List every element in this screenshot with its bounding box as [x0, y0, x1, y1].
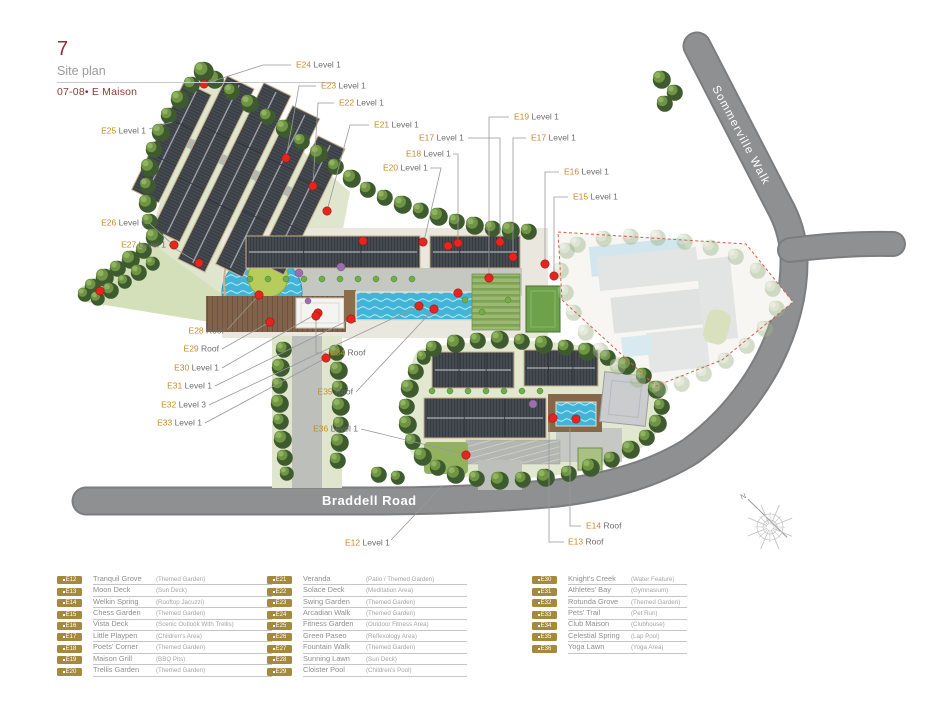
legend-row: E26Green Paseo(Reflexology Area) — [267, 631, 467, 642]
legend-facility-desc: (Water Feature) — [631, 576, 674, 583]
legend-facility-name: Pets' Trail — [568, 608, 631, 617]
tree-icon — [582, 459, 600, 477]
legend-row: E13Moon Deck(Sun Deck) — [57, 585, 272, 596]
badge-dot-icon — [538, 614, 540, 616]
legend-row: E24Arcadian Walk(Themed Garden) — [267, 608, 467, 619]
tree-icon — [559, 243, 575, 259]
tree-icon — [622, 441, 640, 459]
legend-badge-id: E33 — [541, 611, 552, 619]
tree-icon — [639, 430, 655, 446]
bush-icon — [447, 388, 453, 394]
tree-icon — [535, 336, 553, 354]
legend-badge-id: E14 — [66, 599, 77, 607]
legend-facility-name: Yoga Lawn — [568, 642, 631, 651]
facility-marker — [509, 253, 517, 261]
legend-row: E35Celestial Spring(Lap Pool) — [532, 631, 687, 642]
legend-badge: E16 — [57, 622, 82, 630]
facility-marker — [323, 207, 331, 215]
compass-rose: N — [732, 478, 802, 558]
legend-text: Arcadian Walk(Themed Garden) — [303, 608, 467, 620]
legend-row: E25Fitness Garden(Outdoor Fitness Area) — [267, 620, 467, 631]
tree-icon — [332, 398, 350, 416]
tree-icon — [718, 353, 734, 369]
tree-icon — [401, 380, 419, 398]
bush-icon — [519, 388, 525, 394]
badge-dot-icon — [273, 659, 275, 661]
badge-dot-icon — [273, 602, 275, 604]
legend-badge-id: E31 — [541, 588, 552, 596]
bush-icon — [501, 388, 507, 394]
badge-dot-icon — [273, 591, 275, 593]
legend-badge: E35 — [532, 633, 557, 641]
legend-facility-name: Tranquil Grove — [93, 574, 156, 583]
facility-marker — [195, 259, 203, 267]
legend-badge: E32 — [532, 599, 557, 607]
tree-icon — [447, 335, 465, 353]
legend-facility-desc: (Themed Garden) — [631, 599, 680, 606]
legend-facility-desc: (Patio / Themed Garden) — [366, 576, 434, 583]
flowering-tree-icon — [295, 269, 303, 277]
legend-facility-desc: (Rooftop Jacuzzi) — [156, 599, 204, 606]
legend-facility-desc: (Scenic Outlook With Trellis) — [156, 621, 234, 628]
legend-facility-desc: (Reflexology Area) — [366, 633, 417, 640]
legend-row: E28Sunning Lawn(Sun Deck) — [267, 654, 467, 665]
tree-icon — [593, 343, 609, 359]
building-roof — [246, 236, 420, 268]
legend-badge-id: E25 — [276, 622, 287, 630]
tree-icon — [447, 466, 465, 484]
bush-icon — [283, 276, 289, 282]
tree-icon — [331, 434, 349, 452]
legend-text: Green Paseo(Reflexology Area) — [303, 631, 467, 643]
badge-dot-icon — [63, 591, 65, 593]
legend-row: E17Little Playpen(Children's Area) — [57, 631, 272, 642]
badge-dot-icon — [273, 671, 275, 673]
tree-icon — [333, 417, 349, 433]
tree-icon — [277, 450, 293, 466]
legend-row: E12Tranquil Grove(Themed Garden) — [57, 574, 272, 585]
flowering-tree-icon — [529, 400, 537, 408]
tree-icon — [491, 472, 509, 490]
legend-facility-desc: (Themed Garden) — [366, 599, 415, 606]
tree-icon — [537, 469, 555, 487]
tree-icon — [649, 415, 667, 433]
bush-icon — [465, 388, 471, 394]
legend-row: E21Veranda(Patio / Themed Garden) — [267, 574, 467, 585]
legend-badge-id: E21 — [276, 576, 287, 584]
compass-ray — [755, 523, 767, 531]
tree-icon — [610, 359, 626, 375]
tree-icon — [469, 471, 485, 487]
legend-badge-id: E30 — [541, 576, 552, 584]
legend-text: Knight's Creek(Water Feature) — [568, 574, 687, 586]
tree-icon — [343, 170, 361, 188]
legend-badge-id: E20 — [66, 668, 77, 676]
legend-facility-desc: (Pet Run) — [631, 610, 657, 617]
building-roof — [430, 236, 520, 268]
tree-icon — [146, 142, 162, 158]
legend-text: Moon Deck(Sun Deck) — [93, 585, 272, 597]
legend-facility-desc: (Themed Garden) — [156, 644, 205, 651]
legend-facility-desc: (Children's Pool) — [366, 667, 412, 674]
badge-dot-icon — [273, 579, 275, 581]
legend-badge-id: E27 — [276, 645, 287, 653]
badge-dot-icon — [63, 614, 65, 616]
legend-badge-id: E22 — [276, 588, 287, 596]
tree-icon — [696, 366, 712, 382]
tree-icon — [152, 124, 170, 142]
tree-icon — [408, 364, 424, 380]
legend-facility-desc: (Meditation Area) — [366, 587, 413, 594]
bush-icon — [319, 276, 325, 282]
legend-facility-name: Cloister Pool — [303, 665, 366, 674]
legend-badge-id: E26 — [276, 633, 287, 641]
legend-row: E33Pets' Trail(Pet Run) — [532, 608, 687, 619]
legend-column-2: E21Veranda(Patio / Themed Garden)E22Sola… — [267, 574, 467, 677]
legend-facility-name: Little Playpen — [93, 631, 156, 640]
compass-ray — [766, 530, 774, 542]
building-roof — [424, 398, 546, 438]
tree-icon — [146, 229, 164, 247]
page-title: Site plan — [57, 64, 335, 83]
tree-icon — [491, 331, 509, 349]
legend-row: E36Yoga Lawn(Yoga Area) — [532, 642, 687, 653]
legend-badge-id: E29 — [276, 668, 287, 676]
flowering-tree-icon — [305, 298, 311, 304]
legend-badge: E18 — [57, 645, 82, 653]
building-roof — [432, 352, 514, 388]
road-branch — [790, 244, 893, 250]
legend-badge: E19 — [57, 656, 82, 664]
facility-marker — [454, 289, 462, 297]
legend-text: Vista Deck(Scenic Outlook With Trellis) — [93, 619, 272, 631]
tree-icon — [652, 381, 668, 397]
tree-icon — [310, 145, 328, 163]
facility-marker — [444, 242, 452, 250]
legend-text: Rotunda Grove(Themed Garden) — [568, 597, 687, 609]
legend-facility-desc: (Yoga Area) — [631, 644, 663, 651]
legend-badge: E12 — [57, 576, 82, 584]
tree-icon — [413, 203, 429, 219]
legend-facility-name: Celestial Spring — [568, 631, 631, 640]
tree-icon — [485, 221, 501, 237]
legend-text: Pets' Trail(Pet Run) — [568, 608, 687, 620]
tree-icon — [271, 395, 289, 413]
bush-icon — [537, 388, 543, 394]
legend-facility-desc: (Children's Area) — [156, 633, 202, 640]
legend-row: E18Poets' Corner(Themed Garden) — [57, 642, 272, 653]
legend-badge: E36 — [532, 645, 557, 653]
legend: E12Tranquil Grove(Themed Garden)E13Moon … — [0, 574, 943, 694]
legend-badge-id: E24 — [276, 611, 287, 619]
tree-icon — [414, 448, 432, 466]
facility-marker — [96, 287, 104, 295]
legend-facility-name: Maison Grill — [93, 654, 156, 663]
legend-badge-id: E13 — [66, 588, 77, 596]
facility-marker — [359, 237, 367, 245]
tree-icon — [739, 338, 755, 354]
bush-icon — [301, 276, 307, 282]
tree-icon — [360, 182, 376, 198]
bush-icon — [505, 297, 511, 303]
tree-icon — [139, 195, 157, 213]
legend-text: Fountain Walk(Themed Garden) — [303, 642, 467, 654]
bush-icon — [429, 388, 435, 394]
badge-dot-icon — [538, 636, 540, 638]
bush-icon — [479, 309, 485, 315]
tree-icon — [142, 214, 158, 230]
tree-icon — [769, 301, 785, 317]
facility-marker — [309, 182, 317, 190]
legend-facility-desc: (Themed Garden) — [366, 610, 415, 617]
legend-badge-id: E17 — [66, 633, 77, 641]
legend-badge: E28 — [267, 656, 292, 664]
legend-text: Little Playpen(Children's Area) — [93, 631, 272, 643]
tree-icon — [502, 222, 520, 240]
legend-row: E22Solace Deck(Meditation Area) — [267, 585, 467, 596]
badge-dot-icon — [273, 648, 275, 650]
facility-marker — [430, 305, 438, 313]
legend-badge-id: E12 — [66, 576, 77, 584]
badge-dot-icon — [63, 671, 65, 673]
legend-badge: E22 — [267, 588, 292, 596]
legend-text: Yoga Lawn(Yoga Area) — [568, 642, 687, 654]
legend-text: Cloister Pool(Children's Pool) — [303, 665, 467, 677]
legend-facility-name: Chess Garden — [93, 608, 156, 617]
legend-facility-name: Club Maison — [568, 619, 631, 628]
legend-facility-name: Swing Garden — [303, 597, 366, 606]
legend-text: Veranda(Patio / Themed Garden) — [303, 574, 467, 586]
legend-facility-desc: (Themed Garden) — [156, 576, 205, 583]
legend-text: Fitness Garden(Outdoor Fitness Area) — [303, 619, 467, 631]
legend-facility-name: Poets' Corner — [93, 642, 156, 651]
facility-marker — [541, 260, 549, 268]
tree-icon — [677, 234, 693, 250]
legend-text: Welkin Spring(Rooftop Jacuzzi) — [93, 597, 272, 609]
tree-icon — [515, 472, 531, 488]
legend-facility-desc: (Themed Garden) — [156, 610, 205, 617]
bush-icon — [247, 276, 253, 282]
legend-badge: E30 — [532, 576, 557, 584]
legend-facility-name: Fitness Garden — [303, 619, 366, 628]
legend-facility-name: Rotunda Grove — [568, 597, 631, 606]
legend-facility-desc: (Sun Deck) — [366, 656, 397, 663]
tree-icon — [765, 281, 781, 297]
legend-row: E31Athletes' Bay(Gymnasium) — [532, 585, 687, 596]
legend-row: E27Fountain Walk(Themed Garden) — [267, 642, 467, 653]
braddell-road-label: Braddell Road — [322, 493, 417, 508]
central-building-row — [246, 236, 520, 268]
legend-row: E16Vista Deck(Scenic Outlook With Trelli… — [57, 620, 272, 631]
badge-dot-icon — [273, 625, 275, 627]
legend-badge: E20 — [57, 668, 82, 676]
flowering-tree-icon — [337, 263, 345, 271]
legend-badge: E29 — [267, 668, 292, 676]
legend-facility-desc: (Outdoor Fitness Area) — [366, 621, 429, 628]
tree-icon — [558, 340, 574, 356]
tree-icon — [703, 240, 719, 256]
facility-marker — [572, 415, 580, 423]
tree-icon — [558, 285, 574, 301]
tree-icon — [391, 471, 405, 485]
legend-facility-name: Vista Deck — [93, 619, 156, 628]
legend-badge-id: E15 — [66, 611, 77, 619]
tree-icon — [394, 196, 412, 214]
facility-marker — [170, 241, 178, 249]
compass-needle — [748, 491, 787, 546]
bush-icon — [373, 276, 379, 282]
legend-row: E19Maison Grill(BBQ Pits) — [57, 654, 272, 665]
facility-marker — [347, 315, 355, 323]
bush-icon — [337, 276, 343, 282]
legend-text: Celestial Spring(Lap Pool) — [568, 631, 687, 643]
legend-facility-name: Knight's Creek — [568, 574, 631, 583]
bush-icon — [265, 276, 271, 282]
tree-icon — [657, 96, 673, 112]
legend-row: E34Club Maison(Clubhouse) — [532, 620, 687, 631]
facility-marker — [454, 239, 462, 247]
badge-dot-icon — [538, 625, 540, 627]
tree-icon — [449, 214, 465, 230]
legend-facility-desc: (Themed Garden) — [156, 667, 205, 674]
legend-facility-name: Solace Deck — [303, 585, 366, 594]
legend-facility-desc: (Gymnasium) — [631, 587, 668, 594]
tree-icon — [466, 217, 484, 235]
tree-icon — [521, 224, 537, 240]
badge-dot-icon — [63, 579, 65, 581]
legend-badge: E14 — [57, 599, 82, 607]
badge-dot-icon — [63, 636, 65, 638]
bush-icon — [391, 276, 397, 282]
badge-dot-icon — [538, 579, 540, 581]
badge-dot-icon — [63, 659, 65, 661]
legend-badge: E21 — [267, 576, 292, 584]
legend-facility-desc: (Lap Pool) — [631, 633, 660, 640]
bush-icon — [462, 297, 468, 303]
legend-row: E14Welkin Spring(Rooftop Jacuzzi) — [57, 597, 272, 608]
bush-icon — [355, 276, 361, 282]
facility-marker — [255, 291, 263, 299]
legend-text: Solace Deck(Meditation Area) — [303, 585, 467, 597]
tree-icon — [332, 381, 348, 397]
legend-facility-name: Sunning Lawn — [303, 654, 366, 663]
badge-dot-icon — [63, 602, 65, 604]
tree-icon — [653, 71, 671, 89]
legend-badge: E25 — [267, 622, 292, 630]
facility-marker — [462, 451, 470, 459]
tree-icon — [274, 431, 292, 449]
tree-icon — [470, 333, 486, 349]
legend-badge-id: E34 — [541, 622, 552, 630]
tree-icon — [514, 334, 530, 350]
legend-text: Tranquil Grove(Themed Garden) — [93, 574, 272, 586]
tree-icon — [566, 305, 582, 321]
tree-icon — [561, 466, 577, 482]
facility-marker — [550, 272, 558, 280]
page-header: 7 Site plan 07-08• E Maison — [57, 38, 335, 98]
tree-icon — [103, 283, 119, 299]
legend-text: Club Maison(Clubhouse) — [568, 619, 687, 631]
facility-marker — [485, 274, 493, 282]
legend-column-1: E12Tranquil Grove(Themed Garden)E13Moon … — [57, 574, 272, 677]
legend-facility-name: Moon Deck — [93, 585, 156, 594]
legend-text: Chess Garden(Themed Garden) — [93, 608, 272, 620]
legend-badge-id: E18 — [66, 645, 77, 653]
legend-facility-name: Trellis Garden — [93, 665, 156, 674]
tree-icon — [131, 265, 147, 281]
legend-text: Trellis Garden(Themed Garden) — [93, 665, 272, 677]
compass-north-label: N — [739, 491, 747, 501]
legend-badge-id: E32 — [541, 599, 552, 607]
legend-facility-desc: (Sun Deck) — [156, 587, 187, 594]
legend-badge: E31 — [532, 588, 557, 596]
facility-marker — [312, 312, 320, 320]
legend-badge-id: E23 — [276, 599, 287, 607]
legend-column-3: E30Knight's Creek(Water Feature)E31Athle… — [532, 574, 687, 654]
badge-dot-icon — [273, 636, 275, 638]
badge-dot-icon — [538, 602, 540, 604]
badge-dot-icon — [538, 648, 540, 650]
legend-row: E29Cloister Pool(Children's Pool) — [267, 665, 467, 676]
legend-facility-name: Arcadian Walk — [303, 608, 366, 617]
bush-icon — [409, 276, 415, 282]
tree-icon — [330, 453, 346, 469]
legend-badge: E23 — [267, 599, 292, 607]
legend-badge: E13 — [57, 588, 82, 596]
facility-marker — [415, 302, 423, 310]
tree-icon — [330, 362, 348, 380]
legend-row: E30Knight's Creek(Water Feature) — [532, 574, 687, 585]
tree-icon — [728, 249, 744, 265]
trellis-garden — [472, 274, 520, 330]
page-number: 7 — [57, 38, 335, 61]
badge-dot-icon — [538, 591, 540, 593]
tree-icon — [273, 414, 289, 430]
bush-icon — [483, 388, 489, 394]
legend-badge-id: E28 — [276, 656, 287, 664]
tree-icon — [430, 208, 448, 226]
legend-facility-desc: (Clubhouse) — [631, 621, 665, 628]
tree-icon — [140, 178, 156, 194]
legend-facility-name: Veranda — [303, 574, 366, 583]
legend-badge: E33 — [532, 611, 557, 619]
tree-icon — [430, 460, 446, 476]
legend-badge: E15 — [57, 611, 82, 619]
legend-facility-desc: (Themed Garden) — [366, 644, 415, 651]
tree-icon — [260, 109, 276, 125]
tree-icon — [377, 190, 393, 206]
badge-dot-icon — [273, 614, 275, 616]
facility-marker — [266, 318, 274, 326]
tree-icon — [399, 399, 415, 415]
tree-icon — [399, 416, 417, 434]
legend-text: Swing Garden(Themed Garden) — [303, 597, 467, 609]
legend-text: Athletes' Bay(Gymnasium) — [568, 585, 687, 597]
legend-badge-id: E35 — [541, 633, 552, 641]
legend-facility-name: Fountain Walk — [303, 642, 366, 651]
facility-marker — [322, 354, 330, 362]
tree-icon — [328, 159, 344, 175]
tree-icon — [294, 134, 310, 150]
facility-marker — [419, 238, 427, 246]
facility-marker — [496, 238, 504, 246]
legend-badge-id: E36 — [541, 645, 552, 653]
legend-row: E20Trellis Garden(Themed Garden) — [57, 665, 272, 676]
tree-icon — [596, 231, 612, 247]
legend-row: E15Chess Garden(Themed Garden) — [57, 608, 272, 619]
tree-icon — [604, 452, 620, 468]
legend-facility-name: Welkin Spring — [93, 597, 156, 606]
